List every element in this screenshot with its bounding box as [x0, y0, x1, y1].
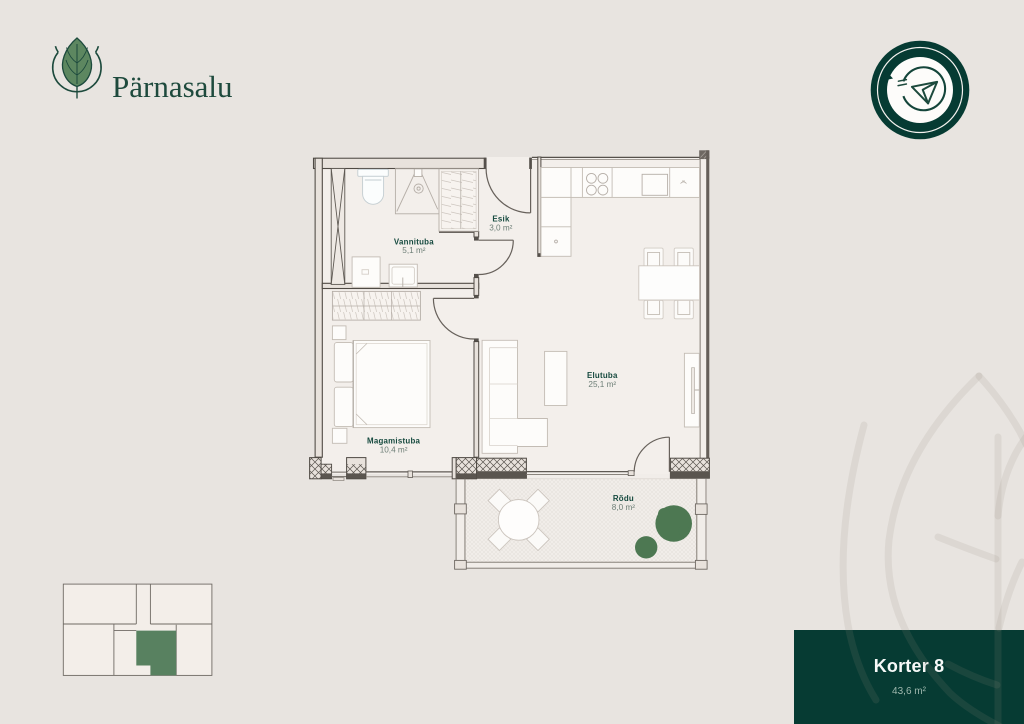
svg-text:5,1 m²: 5,1 m²	[402, 246, 425, 255]
svg-text:3,0 m²: 3,0 m²	[489, 224, 512, 233]
svg-text:25,1 m²: 25,1 m²	[588, 380, 616, 389]
svg-text:Magamistuba: Magamistuba	[367, 437, 421, 446]
svg-text:Esik: Esik	[492, 215, 510, 224]
svg-text:Elutuba: Elutuba	[587, 371, 618, 380]
svg-text:Rõdu: Rõdu	[613, 494, 634, 503]
svg-text:8,0 m²: 8,0 m²	[612, 503, 635, 512]
svg-text:Vannituba: Vannituba	[394, 237, 434, 246]
svg-text:43,6 m²: 43,6 m²	[892, 686, 927, 697]
svg-text:Pärnasalu: Pärnasalu	[112, 69, 233, 104]
svg-text:10,4 m²: 10,4 m²	[380, 446, 408, 455]
